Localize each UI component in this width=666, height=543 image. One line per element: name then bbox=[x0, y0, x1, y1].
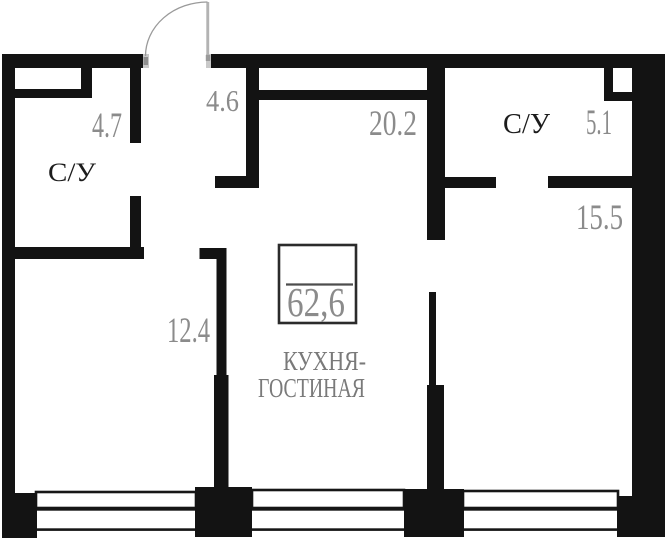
svg-text:5.1: 5.1 bbox=[586, 102, 612, 142]
svg-text:4.6: 4.6 bbox=[206, 83, 239, 118]
svg-text:15.5: 15.5 bbox=[576, 197, 623, 237]
svg-text:12.4: 12.4 bbox=[167, 310, 210, 350]
svg-text:С/У: С/У bbox=[503, 108, 550, 140]
svg-text:62,6: 62,6 bbox=[287, 279, 345, 325]
svg-text:4.7: 4.7 bbox=[92, 105, 122, 145]
svg-text:С/У: С/У bbox=[48, 158, 97, 187]
svg-text:20.2: 20.2 bbox=[369, 103, 417, 143]
svg-text:ГОСТИНАЯ: ГОСТИНАЯ bbox=[258, 373, 365, 403]
svg-text:КУХНЯ-: КУХНЯ- bbox=[283, 346, 366, 376]
